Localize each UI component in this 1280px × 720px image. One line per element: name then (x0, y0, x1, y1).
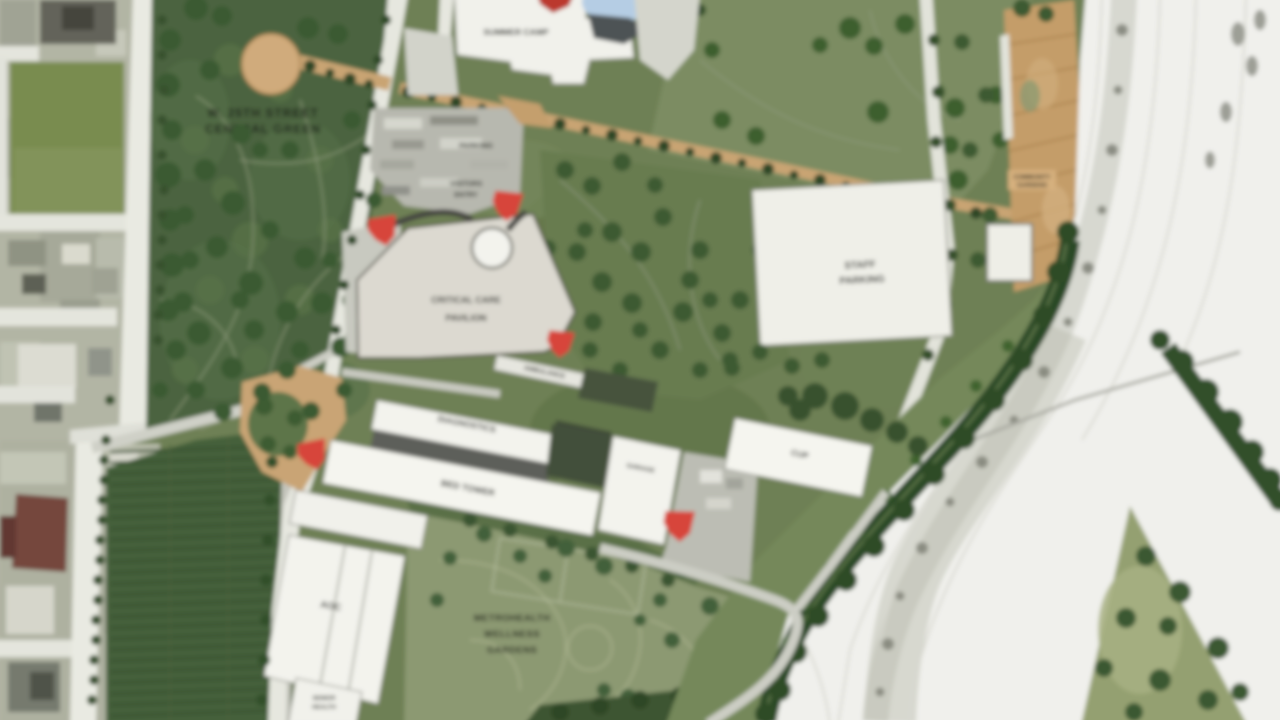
svg-text:CRITICAL CARE: CRITICAL CARE (431, 295, 501, 305)
svg-text:PAVILION: PAVILION (445, 313, 486, 323)
svg-text:SENIOR: SENIOR (312, 696, 336, 702)
svg-text:COMMUNITY: COMMUNITY (1014, 175, 1051, 181)
svg-text:HEALTH: HEALTH (312, 705, 336, 711)
svg-text:WELLNESS: WELLNESS (484, 629, 540, 640)
svg-text:STAFF: STAFF (844, 259, 876, 272)
svg-text:W. 25TH STREET: W. 25TH STREET (207, 106, 318, 120)
svg-text:VISITORS: VISITORS (450, 181, 483, 188)
svg-text:ENTRY: ENTRY (454, 192, 478, 199)
svg-text:CENTRAL GREEN: CENTRAL GREEN (205, 122, 321, 136)
svg-text:METROHEALTH: METROHEALTH (474, 613, 551, 624)
svg-text:GARDENS: GARDENS (1017, 183, 1047, 189)
svg-text:SUMMER CAMP: SUMMER CAMP (483, 27, 548, 37)
svg-text:PARKING: PARKING (459, 141, 493, 150)
svg-text:GARDENS: GARDENS (487, 645, 537, 656)
